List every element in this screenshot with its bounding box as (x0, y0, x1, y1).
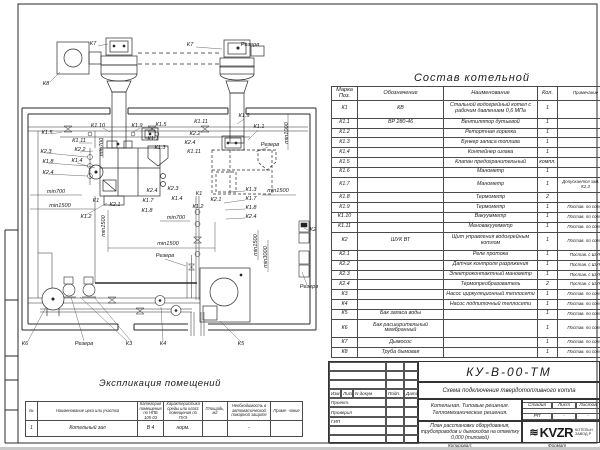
sig-header: Лист (341, 389, 353, 398)
schematic-label: К1.9 (238, 113, 249, 119)
table-cell: Постав. по согла (558, 232, 600, 250)
table-cell: Постав. с ШУК (558, 280, 600, 290)
table-cell (358, 177, 444, 192)
table-cell (558, 138, 600, 148)
table-cell: Ретортная горелка (444, 128, 538, 138)
table-cell: компл. (538, 158, 558, 168)
table-cell: Стальной водогрейный котел с рабочим дав… (444, 100, 538, 118)
table-cell (558, 158, 600, 168)
column-header: Необходимость в автоматической пожарной … (228, 402, 271, 421)
sig-cell (386, 426, 404, 435)
table-row: К1.8Термометр2 (332, 193, 600, 203)
schematic-label: К2.4 (184, 140, 195, 146)
drawing-sheet: К7К7РезервК8К1.5К1.10К1.9К1.5К1.11К2.2К2… (0, 0, 600, 447)
logo-wave-icon: ≋ (529, 426, 538, 439)
schematic-label: К1.10 (91, 123, 106, 129)
schematic-label: min1000 (284, 121, 290, 143)
stage-value: - (576, 413, 600, 420)
table-cell (358, 203, 444, 213)
schematic-label: min3000 (263, 245, 269, 267)
sig-cell (386, 417, 404, 426)
chimney-stack-1 (57, 38, 137, 148)
table-row: К2.4Термопреобразователь2Постав. с ШУК (332, 280, 600, 290)
schematic-label: К2.1 (210, 197, 221, 203)
schematic-label: min1500 (267, 188, 289, 194)
table-cell (558, 100, 600, 118)
stage-value: РП (522, 413, 552, 420)
doc-number: КУ-В-00-ТМ (418, 361, 600, 382)
table-cell: Клапан предохранительный (444, 158, 538, 168)
object-line: Котельная. Типовые решения. (431, 403, 509, 410)
table-cell: 2 (538, 280, 558, 290)
schematic-label: К1.3 (245, 187, 257, 193)
table-cell (358, 250, 444, 260)
sig-cell (386, 380, 404, 389)
table-cell: 1 (538, 128, 558, 138)
sig-role: Проверил (329, 407, 386, 416)
schematic-label: К1.8 (141, 208, 153, 214)
logo-caption: КОТЕЛЬН ЗАВОД Р (575, 428, 593, 437)
schematic-label: К2.3 (167, 186, 179, 192)
table-cell: Постав. по согла (558, 338, 600, 348)
table-cell: К1.4 (332, 148, 358, 158)
sig-cell (404, 426, 419, 435)
table-cell: Дымосос (358, 338, 444, 348)
schematic-label: К1.7 (245, 196, 257, 202)
table-cell (358, 300, 444, 310)
table-cell: К1.5 (332, 158, 358, 168)
table-cell: К1.2 (332, 128, 358, 138)
schematic-label: К1.1 (147, 136, 158, 142)
table-row: К8Труба дымовая1Постав. по согла (332, 347, 600, 357)
sig-cell (329, 435, 386, 444)
table-row: К1.9Термометр1Постав. по согла (332, 203, 600, 213)
spec-table: Марка Поз.ОбозначениеНаименованиеКол.При… (331, 86, 600, 358)
table-cell: 1 (26, 421, 38, 437)
stage-table: Стадия Лист Листов РП - - (522, 399, 600, 421)
schematic-label: К6 (22, 341, 29, 347)
table-cell: К1.8 (332, 193, 358, 203)
table-cell: Бак запаса воды (358, 309, 444, 319)
schematic-label: К7 (90, 41, 97, 47)
table-cell: Постав. по согла (558, 203, 600, 213)
kvzr-logo: ≋ KVZR КОТЕЛЬН ЗАВОД Р (522, 421, 600, 443)
column-header: Примечание (558, 87, 600, 101)
schematic-label: К1.7 (142, 198, 154, 204)
table-cell: Постав. с ШУК (558, 250, 600, 260)
table-row: К1.3Бункер запаса топлива1 (332, 138, 600, 148)
table-cell: КВ (358, 100, 444, 118)
table-cell: Манометр (444, 177, 538, 192)
spec-header-row: Марка Поз.ОбозначениеНаименованиеКол.При… (332, 87, 600, 101)
schematic-label: К1.11 (72, 138, 86, 144)
explication-table: №Наименование цеха или участкаКатегория … (25, 401, 302, 437)
schematic-label: К1.2 (80, 214, 92, 220)
table-cell (444, 309, 538, 319)
table-cell: 1 (538, 100, 558, 118)
table-cell: - (228, 421, 271, 437)
table-row: К2.2Датчик контроля разряжения1Постав. с… (332, 260, 600, 270)
table-cell (358, 290, 444, 300)
table-cell: Постав. по согла (558, 212, 600, 222)
table-cell: Электроконтактный манометр (444, 270, 538, 280)
stage-header: Лист (552, 402, 576, 409)
schematic-label: К5 (238, 341, 245, 347)
table-cell (558, 118, 600, 128)
sig-cell (329, 371, 386, 380)
schematic-label: К1 (93, 198, 99, 204)
table-cell (558, 148, 600, 158)
table-row: К7Дымосос1Постав. по согла (332, 338, 600, 348)
table-cell (358, 212, 444, 222)
table-cell: Щит управления водогрейным котлом (444, 232, 538, 250)
table-cell: К1.10 (332, 212, 358, 222)
column-header: Марка Поз. (332, 87, 358, 101)
sig-cell (386, 435, 404, 444)
schematic-label: К1.5 (41, 130, 53, 136)
schematic-label: Резерв (75, 341, 93, 347)
column-header: Наименование (444, 87, 538, 101)
sig-cell (329, 426, 386, 435)
table-cell: К1.11 (332, 222, 358, 232)
schematic-label: К7 (187, 42, 194, 48)
table-cell: К1.3 (332, 138, 358, 148)
schematic-label: К1 (196, 191, 202, 197)
sig-cell (404, 407, 419, 416)
sig-header: Подп. (386, 389, 404, 398)
table-cell: ШУК ВТ (358, 232, 444, 250)
schematic-label: Резерв (241, 42, 259, 48)
table-cell: К1 (332, 100, 358, 118)
table-cell: 1 (538, 118, 558, 128)
table-cell: Труба дымовая (358, 347, 444, 357)
sig-cell (386, 371, 404, 380)
table-cell: 1 (538, 319, 558, 337)
schematic-label: К1.9 (131, 123, 142, 129)
table-cell: К2.1 (332, 250, 358, 260)
table-cell: К2.3 (332, 270, 358, 280)
sig-cell (404, 380, 419, 389)
schematic-label: К2.3 (40, 149, 52, 155)
footer-copied: Копировал: (420, 443, 500, 447)
table-row: К2ШУК ВТЩит управления водогрейным котло… (332, 232, 600, 250)
table-cell (558, 193, 600, 203)
table-row: К2.1Реле протока1Постав. с ШУК (332, 250, 600, 260)
schematic-label: К2.4 (245, 214, 256, 220)
sig-cell (386, 407, 404, 416)
table-cell: К2.4 (332, 280, 358, 290)
table-cell (358, 222, 444, 232)
column-header: Обозначение (358, 87, 444, 101)
schematic-label: К8 (43, 81, 50, 87)
table-row: К1.2Ретортная горелка1 (332, 128, 600, 138)
table-cell (358, 148, 444, 158)
sig-header: Дата (404, 389, 419, 398)
table-cell: Мановакуумметр (444, 222, 538, 232)
schematic-label: К1.11 (194, 119, 208, 125)
table-cell: Насос подпиточный теплосети (444, 300, 538, 310)
table-cell (358, 193, 444, 203)
table-cell: норм. (164, 421, 203, 437)
table-cell: Котельный зал (38, 421, 138, 437)
table-row: К1.6Манометр1 (332, 168, 600, 178)
schematic-label: min1500 (49, 203, 71, 209)
sig-cell (329, 362, 386, 371)
sig-role: ГИП (329, 417, 386, 426)
table-row: К1.1ВР 280-46Вентилятор дутьевой1 (332, 118, 600, 128)
table-cell: 1 (538, 338, 558, 348)
table-cell: К2 (332, 232, 358, 250)
table-cell (358, 128, 444, 138)
schematic-label: К2.4 (146, 188, 157, 194)
table-cell: К1.6 (332, 168, 358, 178)
table-cell: К5 (332, 309, 358, 319)
table-cell: Постав. с ШУК (558, 260, 600, 270)
table-cell (358, 280, 444, 290)
table-cell: 1 (538, 309, 558, 319)
table-cell: Бак расширительный мембранный (358, 319, 444, 337)
signature-grid: Изм Лист N докум Подп. Дата Проект. Пров… (328, 361, 418, 443)
schematic-label: min1500 (157, 241, 179, 247)
table-cell: 1 (538, 260, 558, 270)
table-cell: 1 (538, 222, 558, 232)
stage-value: - (552, 413, 576, 420)
table-cell: Термометр (444, 193, 538, 203)
table-cell (444, 347, 538, 357)
stage-header: Листов (576, 402, 600, 409)
schematic-label: Резерв (156, 253, 174, 259)
doc-title: Схема подключения твердотопливного котла (418, 382, 600, 399)
table-row: 1Котельный залВ 4норм.- (26, 421, 303, 437)
table-row: К6Бак расширительный мембранный1Постав. … (332, 319, 600, 337)
schematic-label: К1.5 (155, 122, 167, 128)
sig-cell (386, 398, 404, 407)
schematic-label: min700 (47, 189, 66, 195)
table-cell: Термопреобразователь (444, 280, 538, 290)
table-cell: Бункер запаса топлива (444, 138, 538, 148)
table-cell (558, 128, 600, 138)
sig-cell (329, 380, 386, 389)
table-cell: 1 (538, 148, 558, 158)
table-cell: 1 (538, 203, 558, 213)
table-cell: В 4 (138, 421, 164, 437)
schematic-label: К4 (160, 341, 166, 347)
table-cell: 1 (538, 232, 558, 250)
schematic-label: К2 (310, 227, 317, 233)
table-cell (358, 138, 444, 148)
schematic-labels: К7К7РезервК8К1.5К1.10К1.9К1.5К1.11К2.2К2… (22, 41, 318, 347)
table-cell: 1 (538, 290, 558, 300)
table-row: К3Насос циркуляционный теплосети1Постав.… (332, 290, 600, 300)
table-row: К1.7Манометр1Допускается зам. поз. К2.3 (332, 177, 600, 192)
table-cell: К7 (332, 338, 358, 348)
column-header: Площадь, м2 (203, 402, 228, 421)
tank-k5 (200, 268, 250, 322)
table-cell: К4 (332, 300, 358, 310)
table-cell: 1 (538, 347, 558, 357)
table-cell: Постав. по согла (558, 319, 600, 337)
explication-header-row: №Наименование цеха или участкаКатегория … (26, 402, 303, 421)
table-cell: Постав. по согла (558, 222, 600, 232)
schematic-label: min1500 (253, 233, 259, 255)
table-row: К2.3Электроконтактный манометр1Постав. с… (332, 270, 600, 280)
sig-cell (386, 362, 404, 371)
sig-header: N докум (353, 389, 386, 398)
table-cell (203, 421, 228, 437)
control-panels (299, 221, 309, 277)
table-cell: Вакуумметр (444, 212, 538, 222)
table-cell (271, 421, 303, 437)
table-cell: Постав. по согла (558, 290, 600, 300)
sig-header: Изм (329, 389, 341, 398)
schematic-label: К2.4 (42, 170, 53, 176)
schematic-label: К1.3 (154, 145, 166, 151)
column-header: Характеристика среды или класс помещения… (164, 402, 203, 421)
schematic-label: К1.4 (171, 196, 182, 202)
table-row: К1.10Вакуумметр1Постав. по согла (332, 212, 600, 222)
footer-format: Формат (548, 443, 566, 447)
column-header: № (26, 402, 38, 421)
table-row: К5Бак запаса воды1Постав. по согла (332, 309, 600, 319)
table-cell: 1 (538, 250, 558, 260)
table-cell: Реле протока (444, 250, 538, 260)
column-header: Кол. (538, 87, 558, 101)
table-cell: Постав. с ШУК (558, 270, 600, 280)
schematic-label: К2.1 (109, 202, 120, 208)
schematic-label: Резерв (300, 284, 318, 290)
sig-cell (404, 362, 419, 371)
column-header: Категория помещения по НПБ 105-03 (138, 402, 164, 421)
table-cell: 1 (538, 212, 558, 222)
object-line: Тепломеханические решения. (432, 410, 507, 417)
table-cell: Датчик контроля разряжения (444, 260, 538, 270)
schematic-label: К1.8 (42, 159, 54, 165)
schematic-label: Резерв (261, 142, 279, 148)
schematic-label: min700 (99, 137, 105, 156)
table-cell (358, 260, 444, 270)
sig-cell (404, 371, 419, 380)
schematic-label: К3 (126, 341, 133, 347)
table-cell: 1 (538, 168, 558, 178)
schematic-label: К1.4 (71, 158, 82, 164)
sig-cell (404, 398, 419, 407)
schematic-label: К1.11 (187, 149, 201, 155)
table-cell (444, 319, 538, 337)
schematic-label: min700 (167, 215, 186, 221)
table-cell: 1 (538, 138, 558, 148)
table-cell: Вентилятор дутьевой (444, 118, 538, 128)
table-row: К1КВСтальной водогрейный котел с рабочим… (332, 100, 600, 118)
explication-title: Экспликация помещений (80, 378, 240, 389)
table-cell: Постав. по согла (558, 309, 600, 319)
table-row: К4Насос подпиточный теплосети1Постав. по… (332, 300, 600, 310)
table-row: К1.4Контейнер шлака1 (332, 148, 600, 158)
table-cell: К1.9 (332, 203, 358, 213)
table-row: К1.11Мановакуумметр1Постав. по согла (332, 222, 600, 232)
table-cell: 1 (538, 300, 558, 310)
table-cell: ВР 280-46 (358, 118, 444, 128)
stage-header: Стадия (522, 402, 552, 409)
object-name: Котельная. Типовые решения. Тепломеханич… (418, 399, 522, 421)
schematic-label: К2.2 (189, 131, 201, 137)
sig-role: Проект. (329, 398, 386, 407)
table-cell: Постав. по согла (558, 300, 600, 310)
table-cell: К2.2 (332, 260, 358, 270)
column-header: Наименование цеха или участка (38, 402, 138, 421)
table-cell: К3 (332, 290, 358, 300)
table-cell (358, 270, 444, 280)
spec-table-title: Состав котельной (331, 72, 600, 84)
logo-caption-line: ЗАВОД Р (575, 432, 591, 436)
logo-text: KVZR (540, 425, 573, 440)
schematic-label: min1500 (101, 214, 107, 236)
table-cell: К8 (332, 347, 358, 357)
table-cell: К1.7 (332, 177, 358, 192)
table-cell (358, 158, 444, 168)
table-cell: Допускается зам. поз. К2.3 (558, 177, 600, 192)
table-cell: 1 (538, 270, 558, 280)
schematic-label: К2.2 (74, 147, 86, 153)
schematic-label: К1.8 (245, 205, 257, 211)
table-cell: К6 (332, 319, 358, 337)
sheet-title: План расстановки оборудования, трубопров… (418, 421, 522, 443)
table-cell (358, 168, 444, 178)
schematic-label: К1.2 (192, 204, 204, 210)
table-cell (444, 338, 538, 348)
table-cell: К1.1 (332, 118, 358, 128)
table-cell (558, 168, 600, 178)
table-row: К1.5Клапан предохранительныйкомпл. (332, 158, 600, 168)
table-cell: Контейнер шлака (444, 148, 538, 158)
column-header: Приме- чание (271, 402, 303, 421)
table-cell: Манометр (444, 168, 538, 178)
table-cell: Насос циркуляционный теплосети (444, 290, 538, 300)
table-cell: Постав. по согла (558, 347, 600, 357)
table-cell: 1 (538, 177, 558, 192)
sig-cell (404, 417, 419, 426)
table-cell: 2 (538, 193, 558, 203)
schematic-label: К1.1 (253, 124, 264, 130)
table-cell: Термометр (444, 203, 538, 213)
sig-cell (404, 435, 419, 444)
